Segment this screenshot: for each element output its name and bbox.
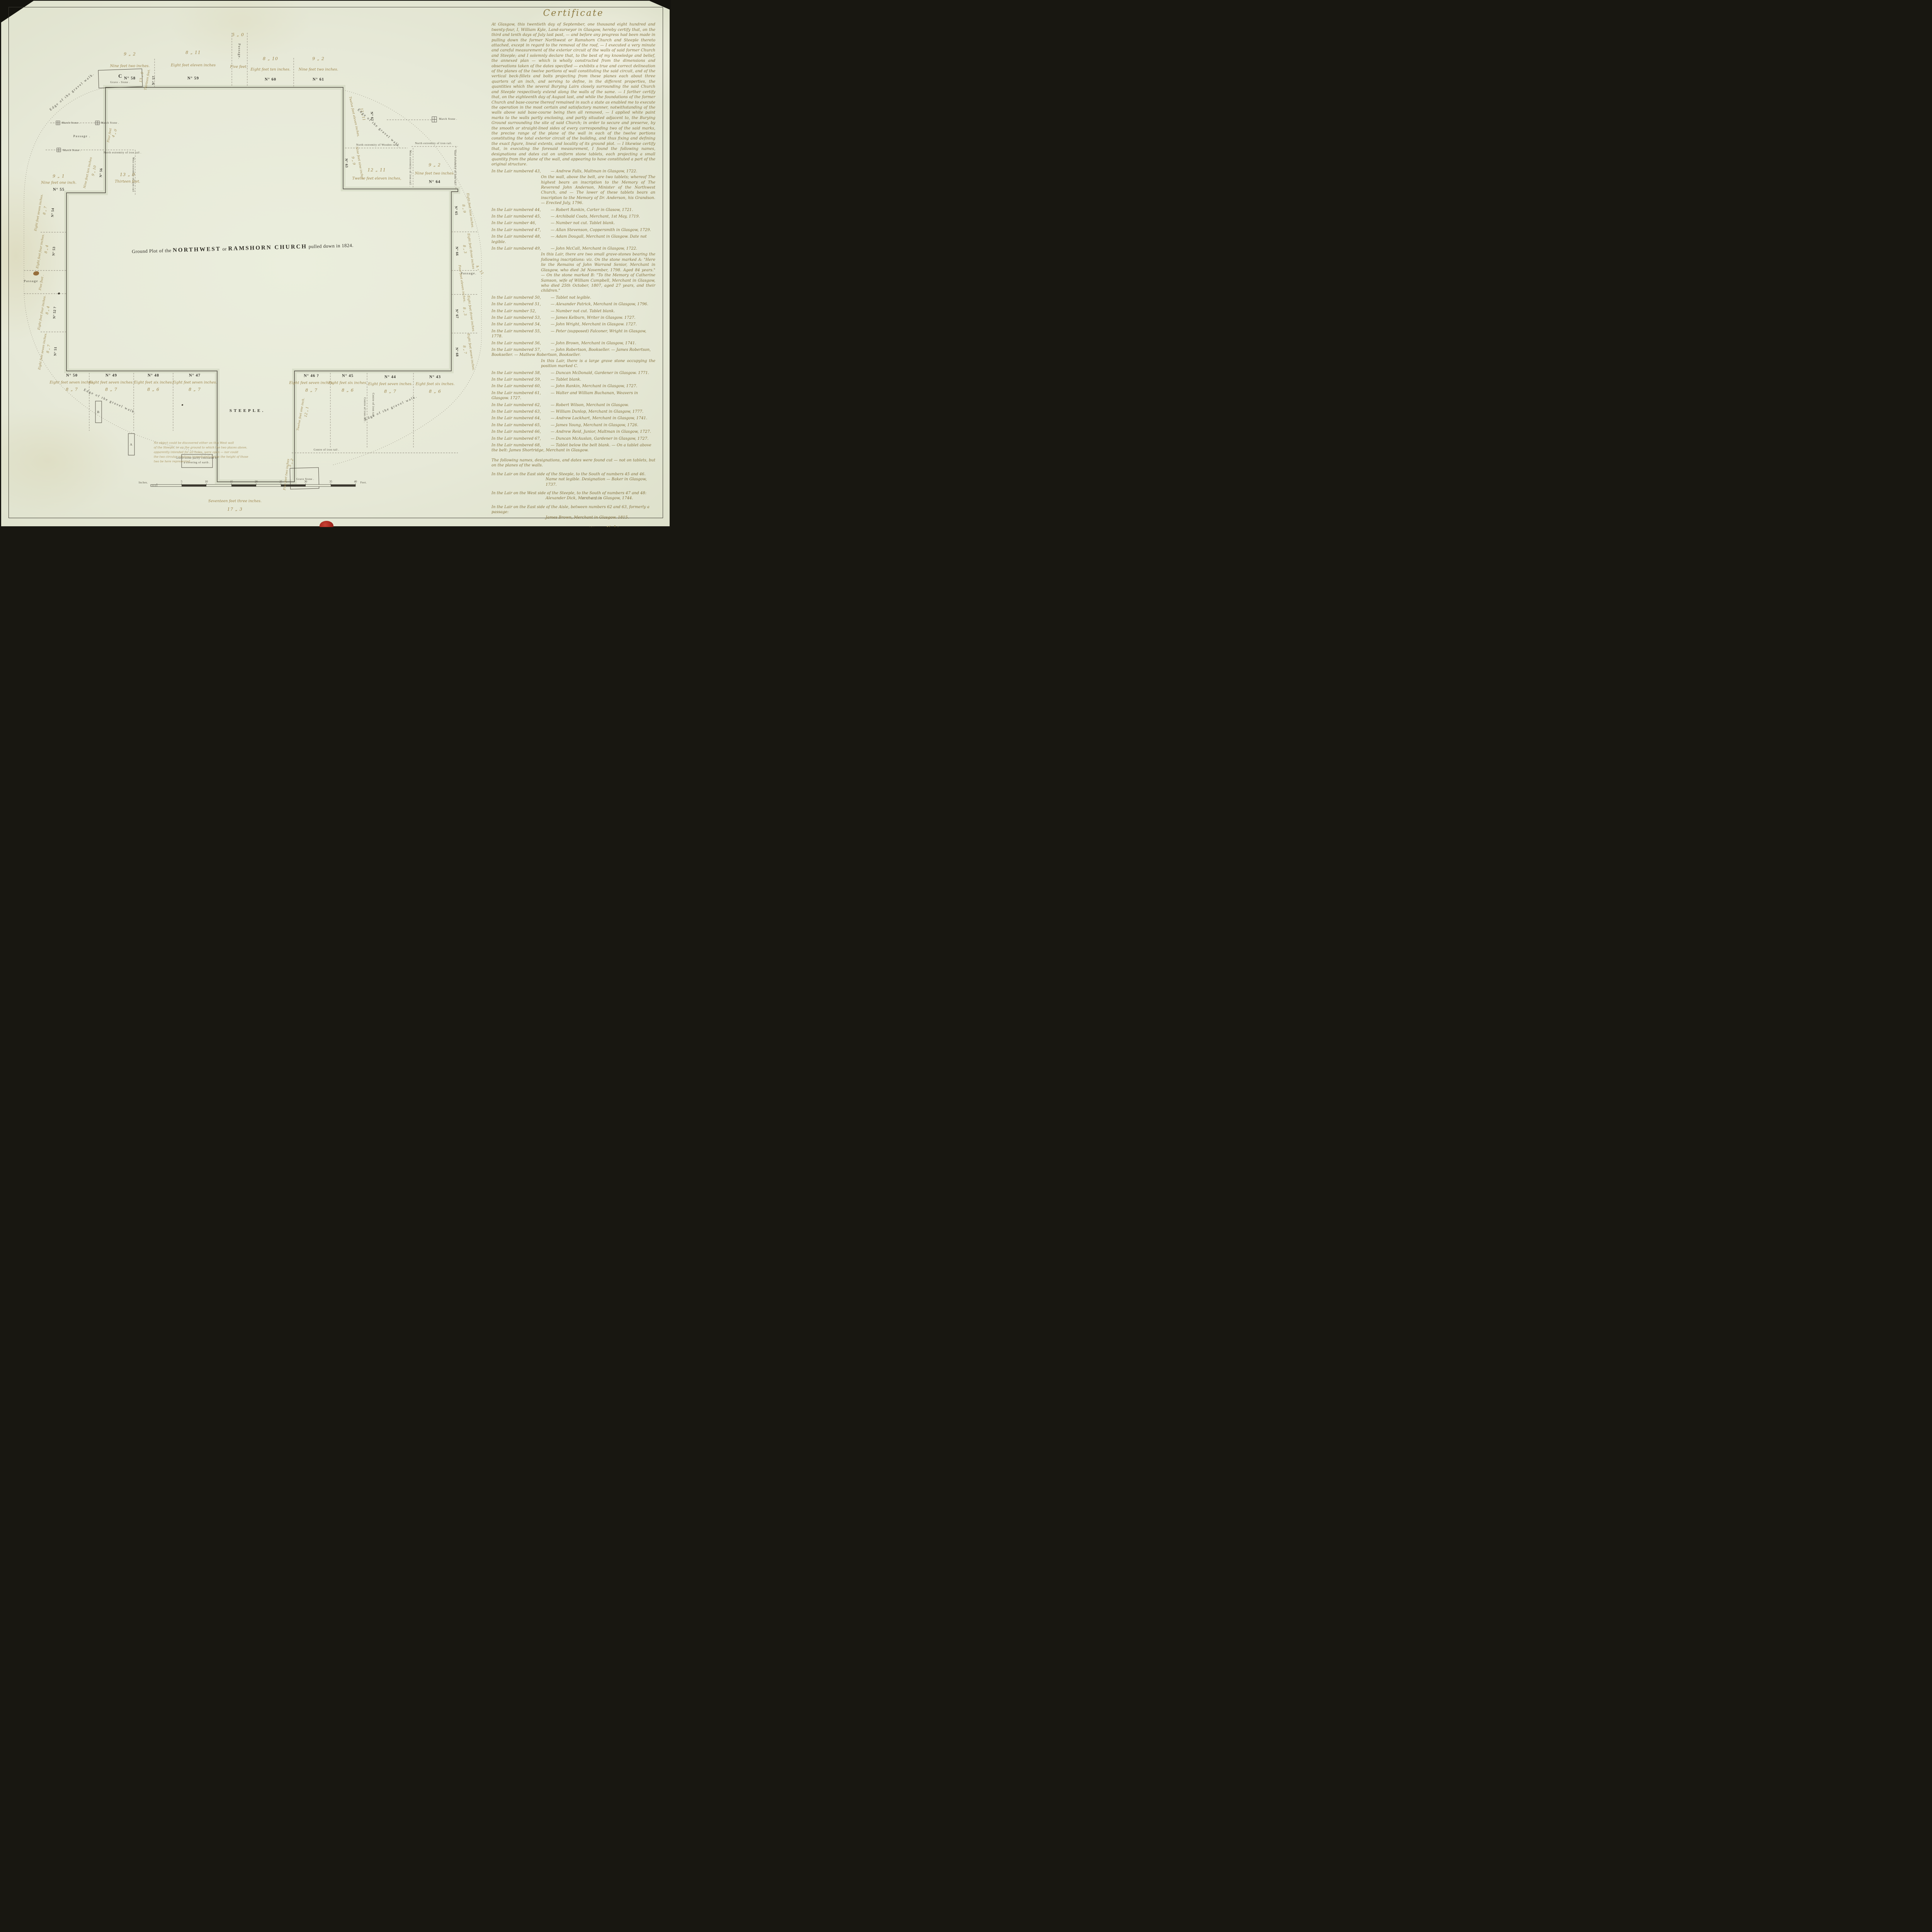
lair-entry-label: In the Lair numbered 54, (492, 322, 549, 327)
lair-entry-text: — Alexander Patrick, Merchant in Glasgow… (549, 302, 648, 306)
wall-entry-label: In the Lair on the East side of the Stee… (492, 472, 655, 477)
lair-entry-label: In the Lair number 52, (492, 309, 549, 314)
lair-entry-label: In the Lair numbered 67, (492, 436, 549, 441)
plan-label: Eight feet six inches. (328, 381, 367, 385)
plan-label: 8 „ 6 (342, 388, 354, 393)
plan-label: Nine feet one inch. (41, 181, 77, 185)
lair-entry-text: — Number not cut. Tablet blank. (549, 221, 615, 225)
lair-entry-label: In the Lair numbered 66, (492, 429, 549, 434)
plan-label: Grave - Stone . (110, 81, 130, 84)
plan-label: 15 (230, 480, 233, 483)
plan-label: A (130, 442, 133, 446)
wall-entry-text: Name not legible. Designation — Baker in… (546, 477, 655, 487)
plan-label: N° 63 (344, 158, 349, 168)
lair-entry-text: — Robert Rankin, Carter in Glasow, 1721. (549, 208, 633, 212)
plan-label: 35 (329, 480, 332, 483)
plan-label: 5 (181, 480, 182, 483)
plan-label: N° 67 (455, 309, 459, 318)
plan-label: N° 49 (105, 374, 117, 378)
plan-label: No object could be discovered either on … (154, 441, 234, 445)
lair-entry-label: In the Lair numbered 57, (492, 347, 549, 352)
lair-entry-text: — Andrew Falls, Maltman in Glasgow, 1722… (549, 169, 637, 173)
lair-entry-note: In this Lair, there are two small grave-… (541, 252, 655, 293)
lair-entry-text: — Tablet not legible. (549, 296, 591, 300)
plan-label: Nine feet two inches. (110, 64, 150, 68)
lair-entry-label: In the Lair numbered 49, (492, 246, 549, 251)
scanned-document-page: Ground Plot of the NORTHWEST or RAMSHORN… (0, 0, 671, 527)
lair-entry: In the Lair numbered 51, — Alexander Pat… (492, 302, 655, 307)
plan-label: North extremity of iron rail. (415, 142, 452, 145)
certificate-title: Certificate (492, 11, 655, 16)
plan-label: 9 „ 2 (124, 52, 136, 57)
lair-entry-text: — Duncan McAuslan, Gardener in Glasgow, … (549, 437, 648, 441)
lair-entry-label: In the Lair numbered 62, (492, 403, 549, 408)
lair-list: In the Lair numbered 43, — Andrew Falls,… (492, 169, 655, 453)
wall-entry-label: In the Lair on the West side of the Stee… (492, 491, 655, 496)
plan-label: N° 44 (384, 375, 396, 379)
plan-label: North extremity of iron rail . (104, 151, 141, 154)
plan-label: Passage. (461, 271, 476, 275)
lair-entry-label: In the Lair numbered 58, (492, 371, 549, 376)
plan-label: C (118, 73, 122, 79)
plan-label: Eight feet eleven inches (171, 63, 216, 68)
lair-entry-text: — John Rankin, Merchant in Glasgow, 1727… (549, 384, 637, 388)
lair-boundary-dashes (24, 33, 477, 453)
plan-label: Eight feet seven inches. (289, 381, 333, 385)
lair-entry: In the Lair numbered 58, — Duncan McDona… (492, 371, 655, 376)
lair-entry: In the Lair numbered 47, — Allan Stevens… (492, 228, 655, 233)
plan-label: Feet. (361, 481, 367, 484)
plan-label: N° 48 (148, 374, 159, 378)
lair-entry-text: — John McCall, Merchant in Glasgow, 1722… (549, 247, 637, 251)
plan-title-text: Ground Plot of the (132, 248, 173, 254)
lair-entry-text: — Andrew Lockhart, Merchant in Glasgow, … (549, 416, 647, 420)
plan-label: Seventeen feet three inches. (208, 499, 262, 503)
lair-entry-text: — John Wright, Merchant in Glasgow. 1727… (549, 322, 637, 327)
lair-entry: In the Lair numbered 60, — John Rankin, … (492, 384, 655, 389)
lair-entry: In the Lair numbered 64, — Andrew Lockha… (492, 416, 655, 421)
lair-entry: In the Lair number 46, — Number not cut.… (492, 221, 655, 226)
plan-label: Thirteen feet. (115, 180, 140, 184)
lair-entry: In the Lair numbered 67, — Duncan McAusl… (492, 436, 655, 441)
plan-label: March Stone . (63, 149, 81, 152)
plan-title-church-name: NORTHWEST (173, 246, 221, 253)
plan-label: 8 „ 11 (185, 50, 201, 55)
plan-label: Nine feet two inches. (415, 172, 455, 176)
plan-label: the two circular windows immediately bel… (154, 455, 248, 459)
lair-entry: In the Lair numbered 62, — Robert Wilson… (492, 403, 655, 408)
plan-label: Eight feet six inches. (134, 381, 173, 385)
plan-label: March Stone . (439, 117, 457, 121)
plan-label: N° 59 (187, 77, 199, 81)
lair-entry: In the Lair numbered 43, — Andrew Falls,… (492, 169, 655, 174)
plan-label: March Stone . (101, 121, 119, 124)
lair-entry-text: — Andrew Reid, Junior, Maltman in Glasgo… (549, 430, 651, 434)
lair-entry-label: In the Lair numbered 65, (492, 423, 549, 428)
wall-entry: In the Lair on the East side of the Aisl… (492, 505, 655, 520)
grave-stone-outlines (95, 69, 319, 489)
lair-entry-text: — James Young, Merchant in Glasgow, 1726… (549, 423, 638, 427)
plan-label: 8 „ 10 (263, 56, 278, 61)
lair-entry-text: — Allan Stevenson, Coppersmith in Glasgo… (549, 228, 651, 232)
lair-entry: In the Lair numbered 61, — Walter and Wi… (492, 391, 655, 401)
plan-label: Eight feet seven inches. (49, 381, 94, 385)
lair-entry: In the Lair numbered 48, — Adam Dougall,… (492, 234, 655, 245)
lair-entry: In the Lair numbered 54, — John Wright, … (492, 322, 655, 327)
plan-label: N° 52 ? (52, 306, 57, 319)
plan-label: Eight feet seven inches. (368, 382, 412, 386)
lair-entry-label: In the Lair numbered 50, (492, 295, 549, 300)
plan-label: 9 „ 2 (429, 163, 441, 168)
lair-entry-text: — Tablet blank. (549, 378, 581, 382)
plan-label: Eight feet seven inches. (89, 381, 133, 385)
lair-entry-label: In the Lair numbered 60, (492, 384, 549, 389)
plan-label: STEEPLE. (230, 408, 265, 413)
wall-entry-text: James Brown, Merchant in Glasgow. 1815. (546, 515, 655, 520)
plan-label: West extremity of iron rail . (409, 150, 412, 187)
plan-label: Five feet. (230, 65, 247, 69)
plan-label: N° 54 (50, 208, 54, 217)
lair-entry: In the Lair numbered 55, — Peter (suppos… (492, 329, 655, 339)
plan-label: Passage. (238, 43, 241, 59)
lair-entry-label: In the Lair numbered 45, (492, 214, 549, 219)
plan-label: 8 „ 6 (429, 389, 441, 394)
plan-label: Passage . (73, 134, 91, 138)
wall-entry: In the Lair on the East side of the Stee… (492, 472, 655, 487)
lair-entry: In the Lair numbered 59, — Tablet blank. (492, 377, 655, 382)
lair-entry: In the Lair numbered 50, — Tablet not le… (492, 295, 655, 300)
plan-label: East extremity of iron rail . (454, 150, 457, 186)
plan-label: N° 50 (66, 374, 78, 378)
plan-label: 13 „ 0 (120, 172, 135, 177)
lair-entry-label: In the Lair numbered 43, (492, 169, 549, 174)
wall-entry-label: In the Lair on the East side of the Aisl… (492, 505, 655, 515)
plan-label: Twelve feet eleven inches, (352, 177, 401, 181)
lair-entry-label: In the Lair numbered 51, (492, 302, 549, 307)
plan-label: March Stone . (62, 121, 80, 124)
lair-entry: In the Lair numbered 57, — John Robertso… (492, 347, 655, 358)
plan-label: 8 „ 6 (147, 387, 160, 392)
plan-label: 8 „ 7 (66, 387, 78, 392)
plan-label: Centre of iron rail . (314, 448, 339, 451)
plan-label: N° 53 (51, 247, 56, 256)
plan-label: 10 (205, 480, 208, 483)
plan-label: N° 68 (455, 347, 459, 357)
plan-label: N° 47 (189, 374, 201, 378)
plan-label: N° 55 (53, 188, 65, 192)
certificate-column: Certificate At Glasgow, this twentieth d… (492, 10, 655, 527)
lair-entry: In the Lair numbered 66, — Andrew Reid, … (492, 429, 655, 434)
lair-entry-label: In the Lair numbered 55, (492, 329, 549, 334)
plan-label: N° 61 (313, 78, 324, 82)
lair-entry-label: In the Lair numbered 64, (492, 416, 549, 421)
plan-label: B (97, 410, 100, 414)
lair-entry-label: In the Lair numbered 53, (492, 315, 549, 320)
lair-entry-text: — Number not cut. Tablet blank. (549, 309, 615, 313)
plan-label: 20 (255, 480, 258, 483)
plan-label: N° 43 (429, 375, 441, 379)
lair-entry-text: — William Dunlop, Merchant in Glasgow, 1… (549, 410, 643, 414)
lair-entry-text: — Archibald Coats, Merchant, 1st May, 17… (549, 214, 640, 219)
wall-entries: In the Lair on the East side of the Stee… (492, 472, 655, 520)
lair-entry-label: In the Lair numbered 47, (492, 228, 549, 233)
lair-entry-label: In the Lair numbered 61, (492, 391, 549, 396)
plan-label: N° 46 ? (304, 374, 319, 378)
lair-entry-text: — James Kelburn, Writer in Glasgow. 1727… (549, 316, 635, 320)
plan-label: of the Steeple, or on the ground to whic… (154, 446, 247, 449)
surveyor-signature: William Kyle (580, 524, 655, 527)
plan-label: two be here represented. (154, 460, 191, 463)
wall-entry-text: Alexander Dick, Merchant in Glasgow, 174… (546, 496, 655, 501)
lair-entry-note: In this Lair, there is a large grave sto… (541, 359, 655, 369)
lair-entry: In the Lair numbered 45, — Archibald Coa… (492, 214, 655, 219)
plan-label: 8 „ 7 (105, 387, 117, 392)
plan-label: 5 „ 0 (232, 32, 244, 37)
lair-entry-label: In the Lair numbered 48, (492, 234, 549, 239)
plan-label: 12 „ 11 (367, 168, 386, 173)
lair-entry: In the Lair number 52, — Number not cut.… (492, 309, 655, 314)
plan-label: North extremity of Wooden rail (356, 143, 397, 146)
plan-label: Eight feet seven inches. (172, 381, 217, 385)
plan-label: N° 60 (265, 78, 276, 82)
plan-label: Eight feet six inches. (415, 382, 454, 386)
certificate-body: At Glasgow, this twentieth day of Septem… (492, 22, 655, 167)
lair-entry: In the Lair numbered 53, — James Kelburn… (492, 315, 655, 320)
lair-entry-label: In the Lair numbered 44, (492, 207, 549, 213)
plan-label: 8 „ 7 (189, 387, 201, 392)
plan-label: N° 66 (455, 247, 459, 256)
plan-label: Nine feet two inches. (299, 68, 338, 72)
plan-label: apparently intended for air-holes, were … (154, 451, 238, 454)
plan-label: Inches. (139, 481, 148, 484)
plan-label: N° 45 (342, 374, 354, 378)
plan-label: N° 56 (99, 168, 103, 177)
lair-entry-label: In the Lair numbered 59, (492, 377, 549, 382)
wall-entry: In the Lair on the West side of the Stee… (492, 491, 655, 501)
plan-label: 9 „ 1 (53, 174, 65, 179)
lair-entry: In the Lair numbered 56, — John Brown, M… (492, 341, 655, 346)
plan-label: N° 58 (124, 77, 136, 81)
lair-entry-text: — Duncan McDonald, Gardener in Glasgow. … (549, 371, 649, 375)
lair-entry: In the Lair numbered 65, — James Young, … (492, 423, 655, 428)
lair-entry-label: In the Lair numbered 63, (492, 409, 549, 414)
plan-label: 25 (279, 480, 282, 483)
plan-label: Passage . (24, 279, 41, 283)
lair-entry: In the Lair numbered 63, — William Dunlo… (492, 409, 655, 414)
lair-entry-text: — John Brown, Merchant in Glasgow, 1741. (549, 341, 636, 345)
plan-label: 17 „ 3 (227, 507, 243, 512)
plan-label: N° 64 (429, 180, 440, 184)
lair-entry-note: On the wall, above the belt, are two tab… (541, 175, 655, 206)
plan-label: N° 65 (454, 206, 458, 215)
plan-label: 8 „ 7 (305, 388, 318, 393)
plan-label: N° 51 (53, 347, 57, 356)
plan-label: 9 „ 2 (312, 56, 325, 61)
lair-entry-label: In the Lair numbered 56, (492, 341, 549, 346)
plan-label: 40 (354, 480, 357, 483)
lair-entry: In the Lair numbered 49, — John McCall, … (492, 246, 655, 251)
plan-label: 8 „ 7 (384, 389, 396, 394)
plan-label: N° 57 (151, 76, 155, 85)
lair-entry: In the Lair numbered 44, — Robert Rankin… (492, 207, 655, 213)
lair-entry: In the Lair numbered 68, — Tablet below … (492, 443, 655, 453)
plan-label: Eight feet ten inches. (250, 68, 290, 72)
certificate-closing: The following names, designations, and d… (492, 458, 655, 468)
plan-label: 30 (304, 480, 307, 483)
lair-entry-label: In the Lair numbered 68, (492, 443, 549, 448)
lair-entry-label: In the Lair number 46, (492, 221, 549, 226)
lair-entry-text: — Robert Wilson, Merchant in Glasgow. (549, 403, 629, 407)
